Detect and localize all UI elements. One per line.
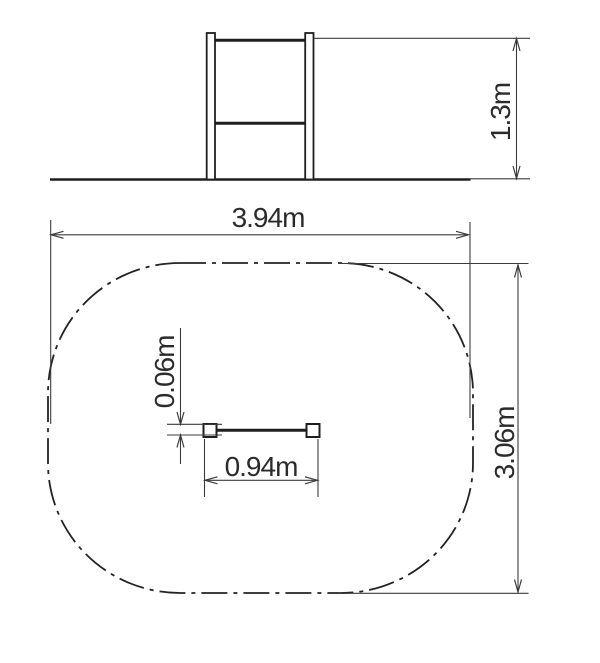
zone-depth-dimension: 3.06m: [338, 264, 529, 594]
elevation-view: 1.3m: [50, 33, 530, 180]
bar-offset-dimension: 0.06m: [149, 328, 222, 464]
left-post-elevation: [207, 33, 215, 180]
height-dimension: 1.3m: [314, 38, 531, 179]
zone-width-dimension: 3.94m: [51, 202, 470, 424]
right-post-plan: [307, 424, 320, 437]
zone-depth-label: 3.06m: [489, 407, 520, 480]
height-dim-label: 1.3m: [485, 83, 516, 141]
safety-zone-outline: [48, 263, 473, 593]
zone-width-label: 3.94m: [232, 202, 305, 233]
plan-view: 3.94m 3.06m 0.06m: [48, 202, 529, 593]
technical-drawing: 1.3m 3.94m: [0, 0, 600, 663]
drawing-sheet: 1.3m 3.94m: [0, 0, 600, 663]
bar-length-label: 0.94m: [225, 451, 298, 482]
bar-offset-label: 0.06m: [149, 336, 180, 409]
right-post-elevation: [305, 33, 313, 180]
bar-length-dimension: 0.94m: [205, 439, 319, 497]
